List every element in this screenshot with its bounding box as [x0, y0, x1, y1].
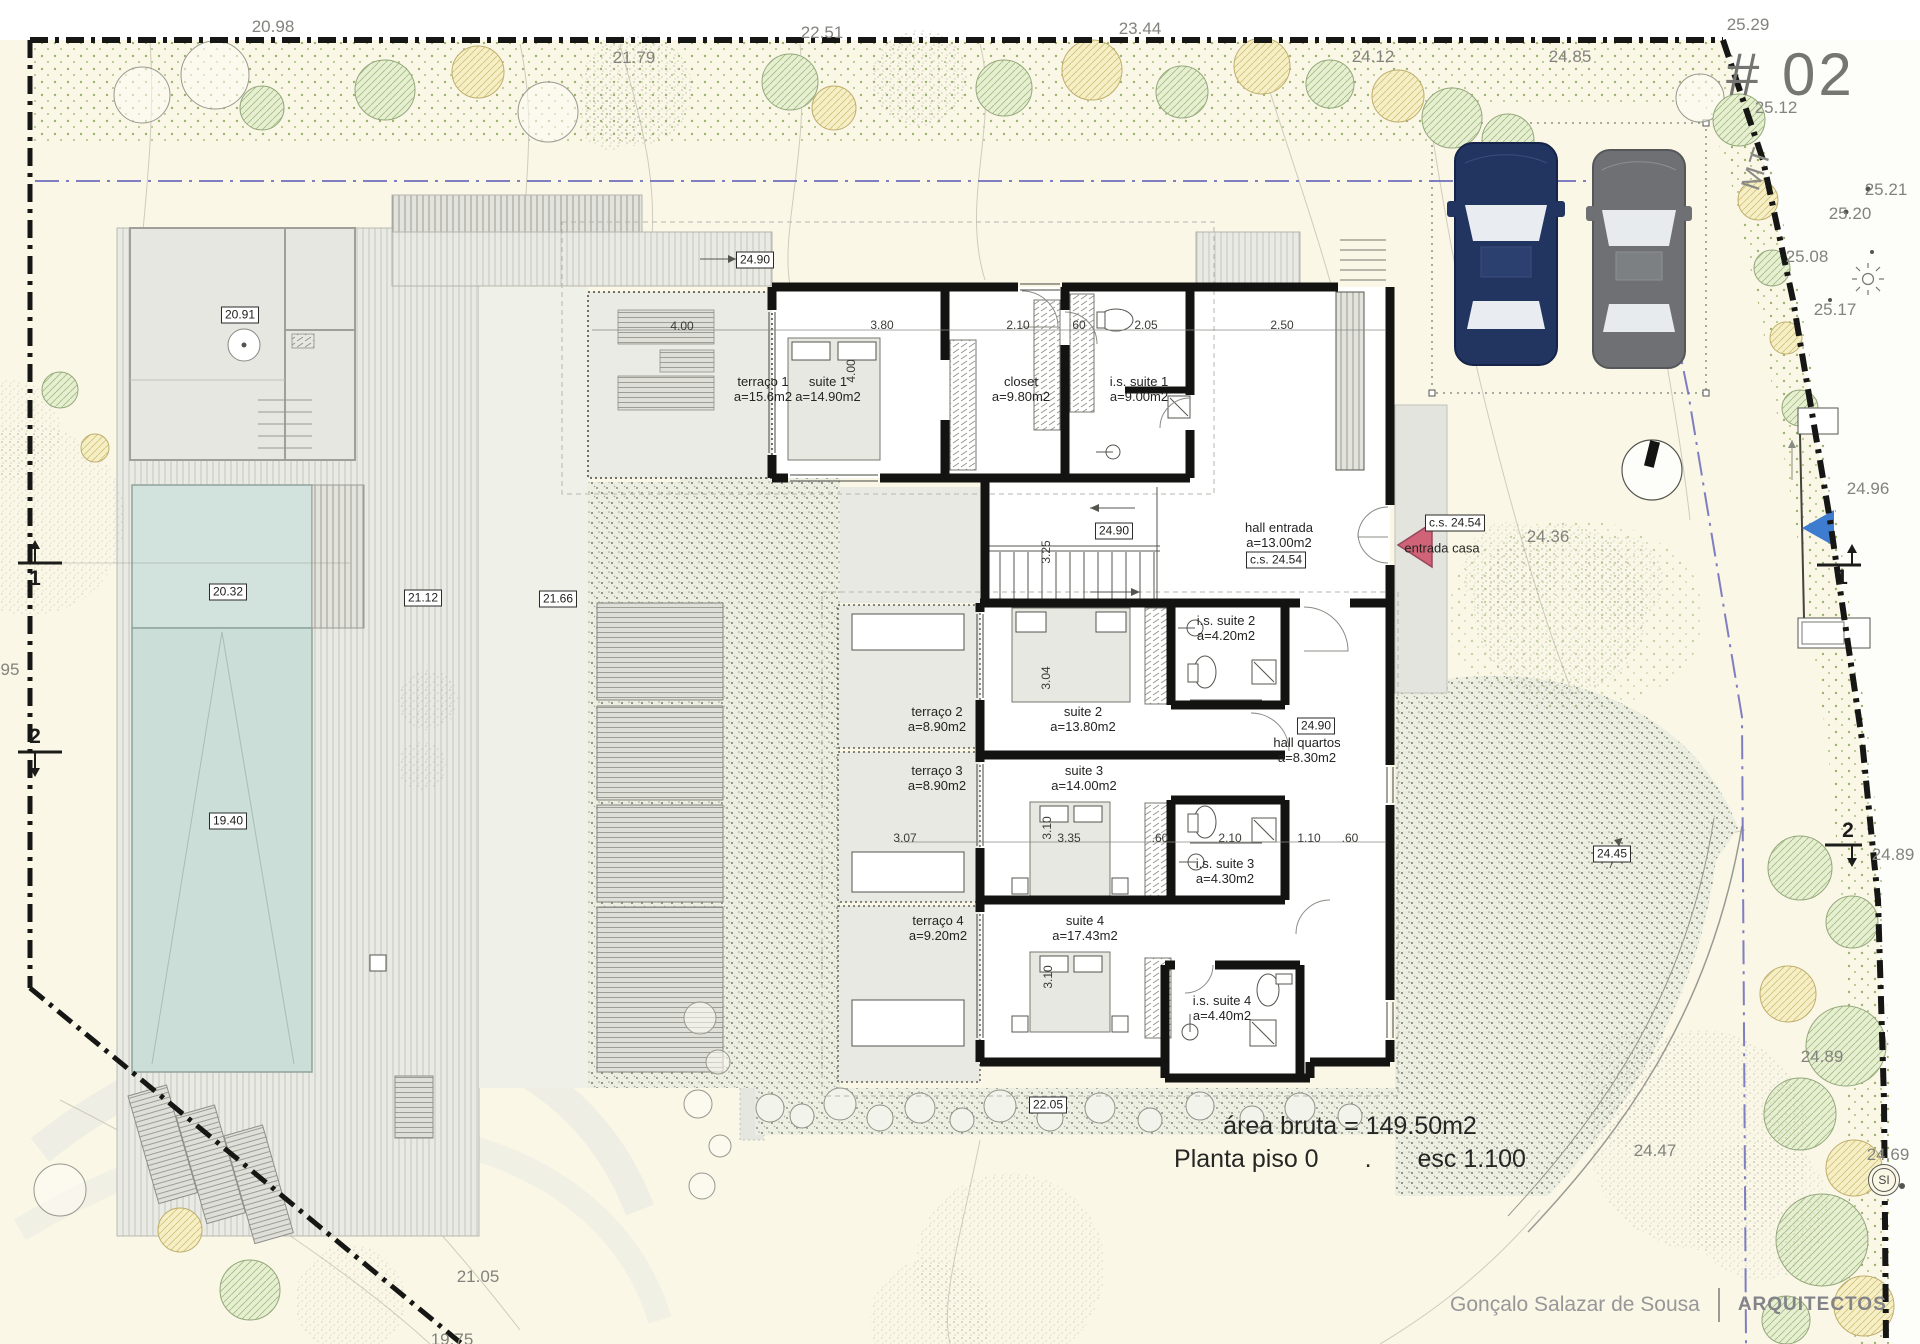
site-plan-page: 20.9822.5123.4421.7924.1225.2924.8525.12… [0, 0, 1920, 1344]
title-block-footer: Gonçalo Salazar de Sousa ARQUITECTOS [1450, 1288, 1887, 1322]
sheet-number-title: # 02 [1726, 40, 1920, 109]
site-plan-drawing [0, 0, 1920, 1344]
plan-scale-text: Planta piso 0.esc 1.100 [1120, 1145, 1580, 1174]
car-navy [1447, 143, 1565, 365]
survey-badge: SI [1868, 1164, 1900, 1196]
plan-summary: área bruta = 149.50m2 Planta piso 0.esc … [1120, 1112, 1580, 1174]
stair-to-upper [1336, 292, 1364, 470]
car-gray [1586, 150, 1692, 368]
footer-divider [1718, 1288, 1720, 1322]
architect-name: Gonçalo Salazar de Sousa [1450, 1293, 1700, 1317]
garage-annex [130, 228, 355, 460]
studio-name: ARQUITECTOS [1738, 1294, 1887, 1316]
manhole-icon [1622, 440, 1682, 500]
gross-area-text: área bruta = 149.50m2 [1120, 1112, 1580, 1141]
carport-slats [597, 603, 723, 1072]
